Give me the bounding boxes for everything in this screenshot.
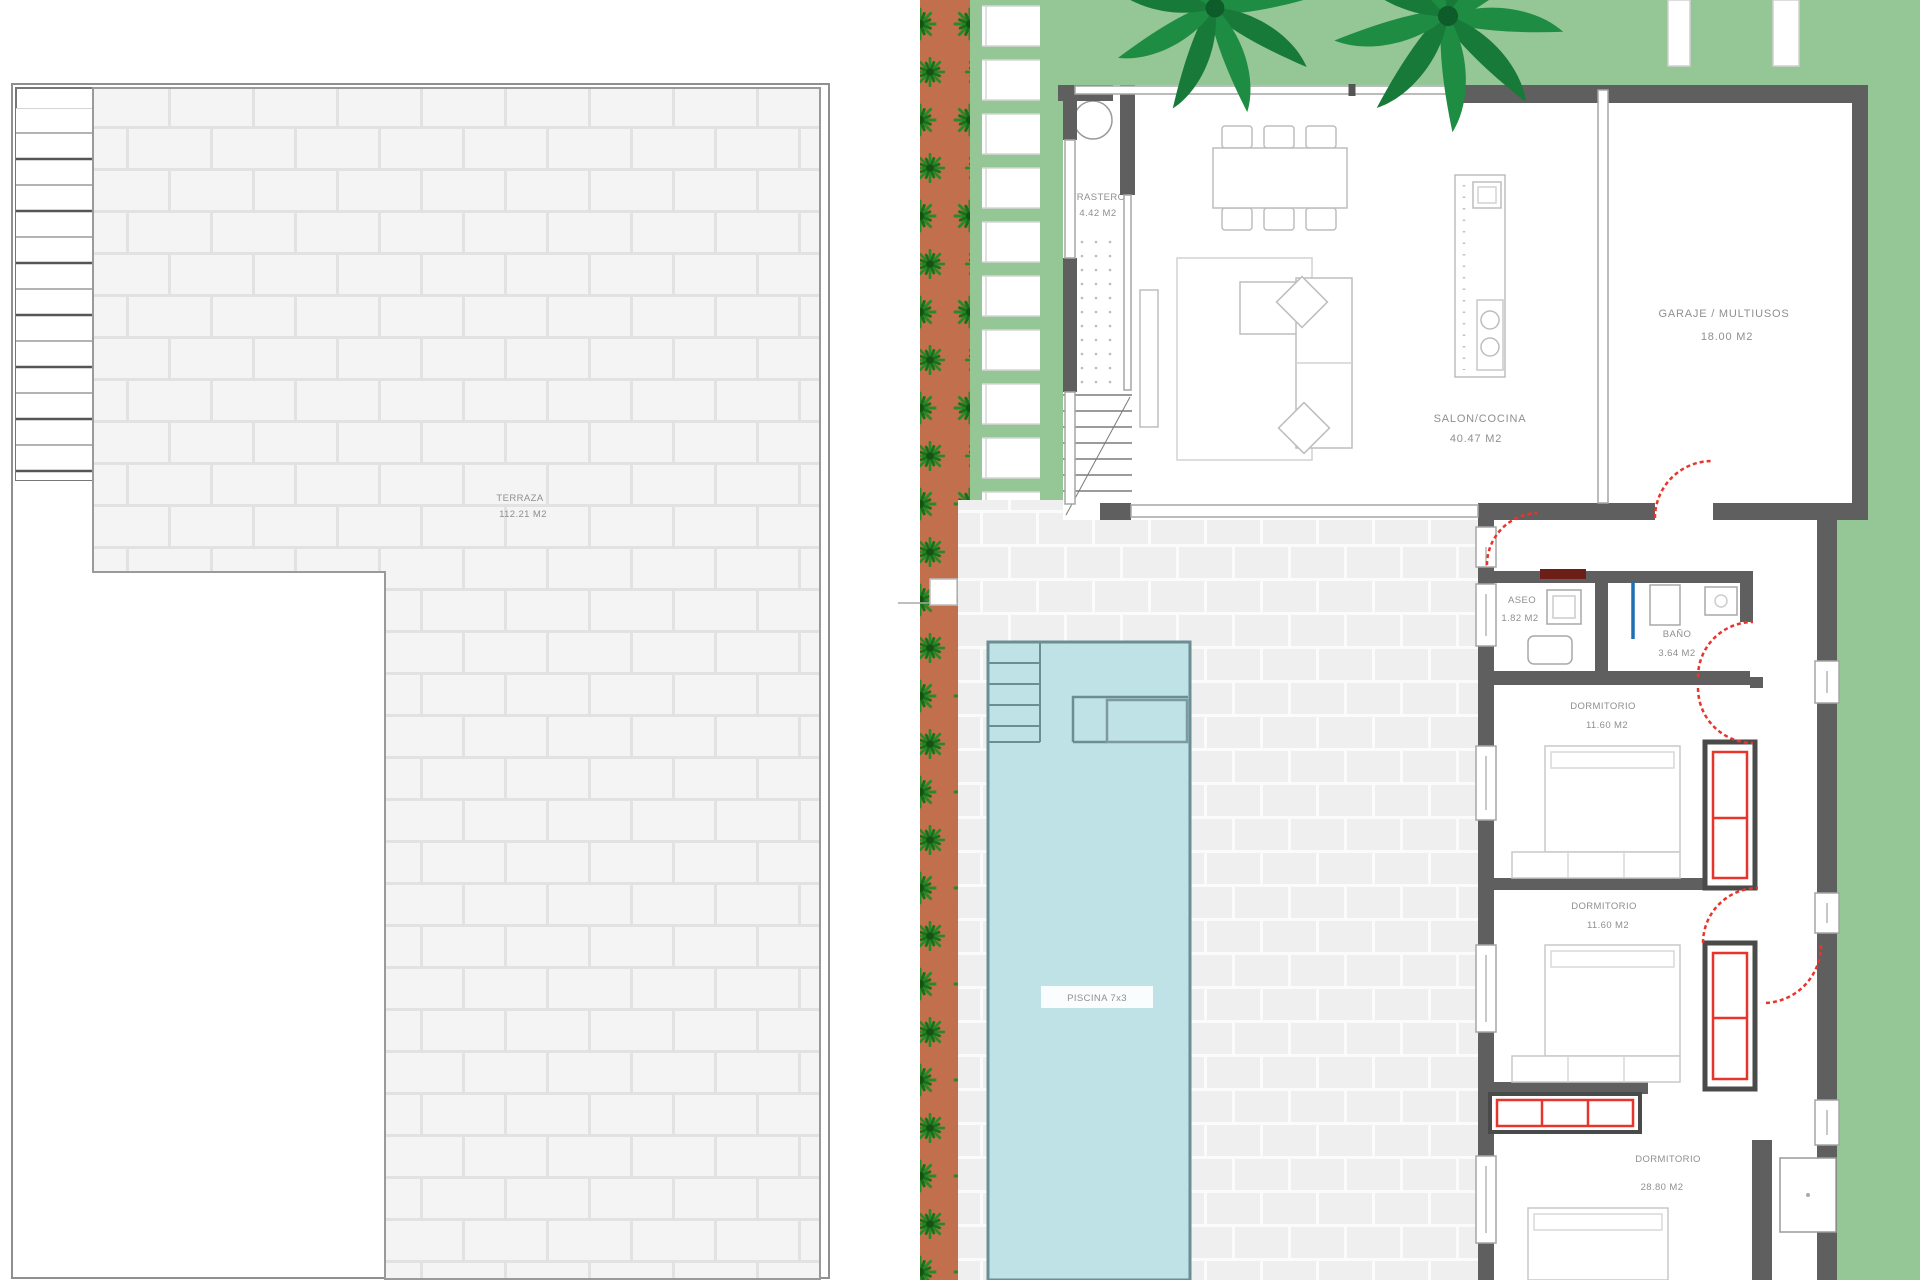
planter-paver bbox=[930, 579, 957, 605]
wall-trastero bbox=[1120, 85, 1135, 195]
dorm3-area: 28.80 M2 bbox=[1641, 1182, 1684, 1193]
tv-unit bbox=[1140, 290, 1158, 427]
dining-chair bbox=[1264, 208, 1294, 230]
floorplan-page: TERRAZA 112.21 M2 PISCINA 7x3 bbox=[0, 0, 1920, 1280]
trastero-label: TRASTERO bbox=[1071, 192, 1126, 203]
dorm1-area: 11.60 M2 bbox=[1586, 720, 1628, 731]
shower-tray bbox=[1650, 585, 1680, 625]
terrace-stairs bbox=[16, 88, 94, 480]
wall-salon-bottom bbox=[1478, 503, 1655, 520]
boiler-circle bbox=[1074, 101, 1112, 139]
wall-dorm3-closet bbox=[1752, 1140, 1772, 1280]
dorm2-area: 11.60 M2 bbox=[1587, 920, 1629, 931]
dining-table bbox=[1213, 148, 1347, 208]
stepping-stone-path bbox=[982, 0, 1040, 500]
wall-bath-bottom bbox=[1478, 671, 1750, 685]
kitchen-island bbox=[1455, 175, 1505, 377]
pool-label: PISCINA 7x3 bbox=[1067, 993, 1127, 1004]
fence-post bbox=[1773, 0, 1799, 66]
bano-sink bbox=[1705, 587, 1737, 615]
bed-bench bbox=[1512, 1056, 1680, 1082]
wall-aseo-bano bbox=[1595, 571, 1608, 685]
swimming-pool: PISCINA 7x3 bbox=[988, 642, 1190, 1280]
bed-bench bbox=[1512, 852, 1680, 878]
door-leaf bbox=[1540, 569, 1586, 579]
dorm3-label: DORMITORIO bbox=[1635, 1154, 1701, 1165]
terrace-label: TERRAZA bbox=[496, 493, 543, 504]
floorplan-canvas: TERRAZA 112.21 M2 PISCINA 7x3 bbox=[0, 0, 1920, 1280]
dorm2-label: DORMITORIO bbox=[1571, 901, 1637, 912]
aseo-label: ASEO bbox=[1508, 595, 1536, 606]
roof-terrace-plan: TERRAZA 112.21 M2 bbox=[12, 84, 829, 1279]
salon-garage-partition bbox=[1598, 90, 1608, 503]
dorm1-label: DORMITORIO bbox=[1570, 701, 1636, 712]
dining-chair bbox=[1264, 126, 1294, 148]
dining-chair bbox=[1306, 126, 1336, 148]
fence-post bbox=[1668, 0, 1690, 66]
salon-area: 40.47 M2 bbox=[1450, 433, 1502, 445]
wall-garage-right bbox=[1852, 85, 1868, 520]
dining-chair bbox=[1222, 126, 1252, 148]
garage-area: 18.00 M2 bbox=[1701, 331, 1753, 343]
grass-right-lower bbox=[1837, 520, 1920, 1280]
wall-garage-bottom bbox=[1713, 503, 1868, 520]
bano-label: BAÑO bbox=[1663, 629, 1692, 640]
wall-dorm1-dorm2 bbox=[1478, 878, 1712, 890]
wall-corridor bbox=[1478, 571, 1753, 583]
grass-right-upper bbox=[1868, 85, 1920, 520]
salon-bottom-window bbox=[1131, 505, 1478, 517]
salon-label: SALON/COCINA bbox=[1434, 413, 1527, 425]
aseo-toilet bbox=[1528, 636, 1572, 664]
bano-area: 3.64 M2 bbox=[1658, 648, 1695, 659]
garage-label: GARAJE / MULTIUSOS bbox=[1659, 308, 1790, 320]
dining-chair bbox=[1306, 208, 1336, 230]
aseo-area: 1.82 M2 bbox=[1501, 613, 1538, 624]
dining-chair bbox=[1222, 208, 1252, 230]
terrace-area: 112.21 M2 bbox=[499, 509, 547, 520]
trastero-area: 4.42 M2 bbox=[1079, 208, 1116, 219]
